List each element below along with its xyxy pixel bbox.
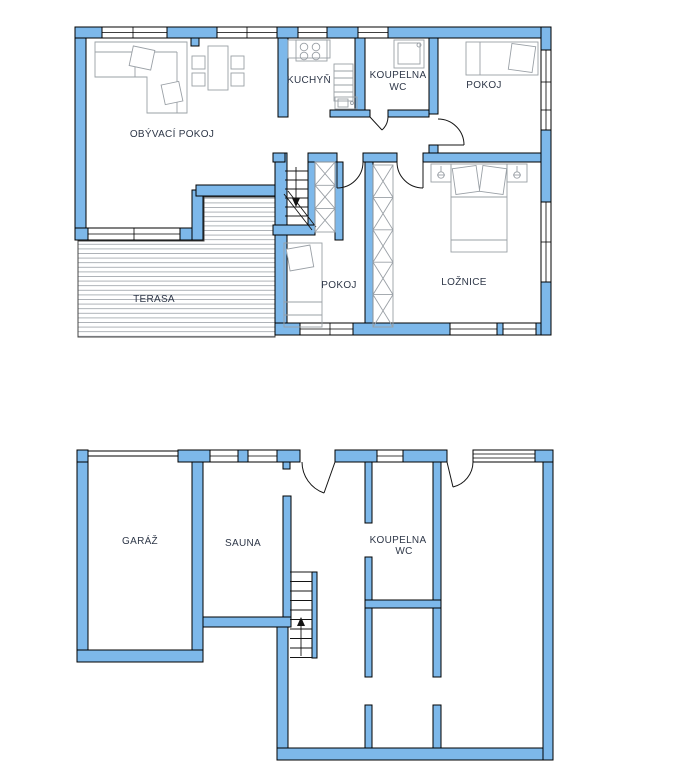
room-label-pokoj-middle: POKOJ xyxy=(321,280,356,291)
room-label-loznice: LOŽNICE xyxy=(441,275,486,288)
lower-stairs-icon xyxy=(290,572,312,658)
entrance-door-icon xyxy=(302,462,335,493)
lower-floor-plan xyxy=(77,450,553,760)
dining-table-icon xyxy=(192,46,244,90)
terrace-deck xyxy=(78,197,275,337)
bathroom-door-icon xyxy=(370,117,388,130)
lower-walls xyxy=(77,450,553,760)
right-room-door-icon xyxy=(447,462,473,487)
single-bed-top-icon xyxy=(466,42,538,75)
room-label-obyvaci-pokoj: OBÝVACÍ POKOJ xyxy=(130,127,214,140)
room-label-wc-lower: WC xyxy=(395,546,412,557)
single-bed-middle-icon xyxy=(284,243,322,327)
floor-plan-page: OBÝVACÍ POKOJ KUCHYŇ KOUPELNA WC POKOJ P… xyxy=(0,0,697,778)
upper-floor-plan xyxy=(75,27,551,337)
top-room-door-icon xyxy=(438,119,464,145)
garage-door-icon xyxy=(88,451,178,456)
lower-doors xyxy=(302,462,473,493)
fridge-icon xyxy=(334,64,353,101)
bedroom-door-icon xyxy=(397,162,423,188)
room-label-wc-upper: WC xyxy=(389,82,406,93)
sofa-icon xyxy=(95,42,187,113)
room-label-pokoj-top: POKOJ xyxy=(466,80,501,91)
room-label-koupelna-lower: KOUPELNA xyxy=(370,535,427,546)
room-label-terasa: TERASA xyxy=(133,294,175,305)
double-bed-icon xyxy=(431,164,527,252)
floor-plan-drawing: OBÝVACÍ POKOJ KUCHYŇ KOUPELNA WC POKOJ P… xyxy=(0,0,697,778)
wardrobe-icon xyxy=(373,165,393,327)
lower-windows xyxy=(88,450,535,462)
wardrobe-icon xyxy=(315,162,335,232)
room-label-koupelna-upper: KOUPELNA xyxy=(370,70,427,81)
shower-icon xyxy=(394,40,424,68)
room-label-sauna: SAUNA xyxy=(225,538,261,549)
room-label-kuchyn: KUCHYŇ xyxy=(287,73,331,86)
room-label-garaz: GARÁŽ xyxy=(122,534,158,547)
